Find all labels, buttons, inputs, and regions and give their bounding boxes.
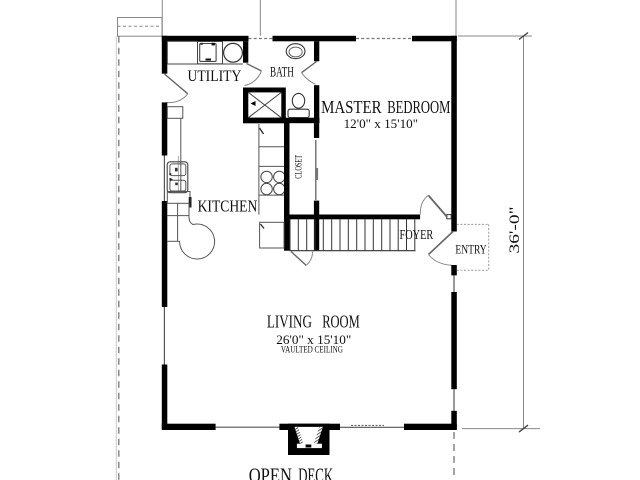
svg-text:LIVING: LIVING	[267, 312, 312, 332]
svg-text:VAULTED CEILING: VAULTED CEILING	[281, 345, 343, 355]
svg-text:BATH: BATH	[270, 64, 294, 80]
svg-text:CLOSET: CLOSET	[294, 154, 304, 178]
svg-text:BEDROOM: BEDROOM	[387, 97, 450, 117]
svg-text:ROOM: ROOM	[322, 312, 360, 332]
svg-text:FOYER: FOYER	[400, 228, 434, 243]
svg-text:MASTER: MASTER	[321, 97, 382, 117]
svg-text:36'-0": 36'-0"	[507, 207, 523, 254]
svg-text:KITCHEN: KITCHEN	[198, 197, 258, 216]
svg-text:12'0" x 15'10": 12'0" x 15'10"	[344, 117, 419, 131]
svg-text:OPEN: OPEN	[249, 464, 292, 480]
svg-text:ENTRY: ENTRY	[455, 242, 487, 257]
svg-text:UTILITY: UTILITY	[188, 68, 242, 85]
svg-text:DECK: DECK	[298, 464, 333, 480]
